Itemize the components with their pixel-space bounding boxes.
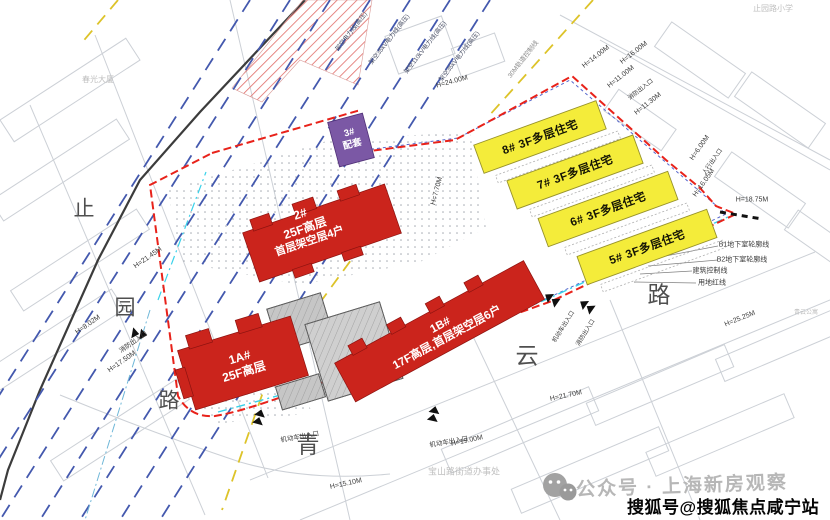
road-left-char-1: 止 (74, 199, 95, 220)
demolition-hatch-zone (232, 0, 372, 102)
red-line-label: 用地红线 (698, 280, 726, 287)
road-bottom-char-2: 云 (516, 345, 539, 368)
wechat-icon (543, 473, 577, 501)
road-left-char-3: 路 (159, 391, 180, 412)
yellow-lowrise-buildings (474, 101, 717, 285)
sohu-watermark: 搜狐号@搜狐焦点咸宁站 (627, 493, 819, 518)
site-plan-drawing (0, 0, 830, 520)
site-plan: 止 园 路 青 云 路 2# 25F高层 首层架空层4户 1A# 25F高层 1… (0, 0, 830, 520)
road-left-char-2: 园 (115, 298, 136, 319)
landmark-school: 止园路小学 (753, 5, 793, 13)
landmark-office: 宝山路街道办事处 (428, 468, 500, 477)
b1-outline-label: B1地下室轮廓线 (719, 242, 770, 249)
control-line-label: 建筑控制线 (693, 268, 728, 275)
b2-outline-label: B2地下室轮廓线 (717, 257, 768, 264)
landmark-apartment: 青云公寓 (794, 310, 818, 316)
height-label: H=18.75M (736, 197, 769, 204)
road-bottom-char-3: 路 (648, 284, 671, 307)
landmark-tower: 春光大厦 (82, 76, 114, 84)
